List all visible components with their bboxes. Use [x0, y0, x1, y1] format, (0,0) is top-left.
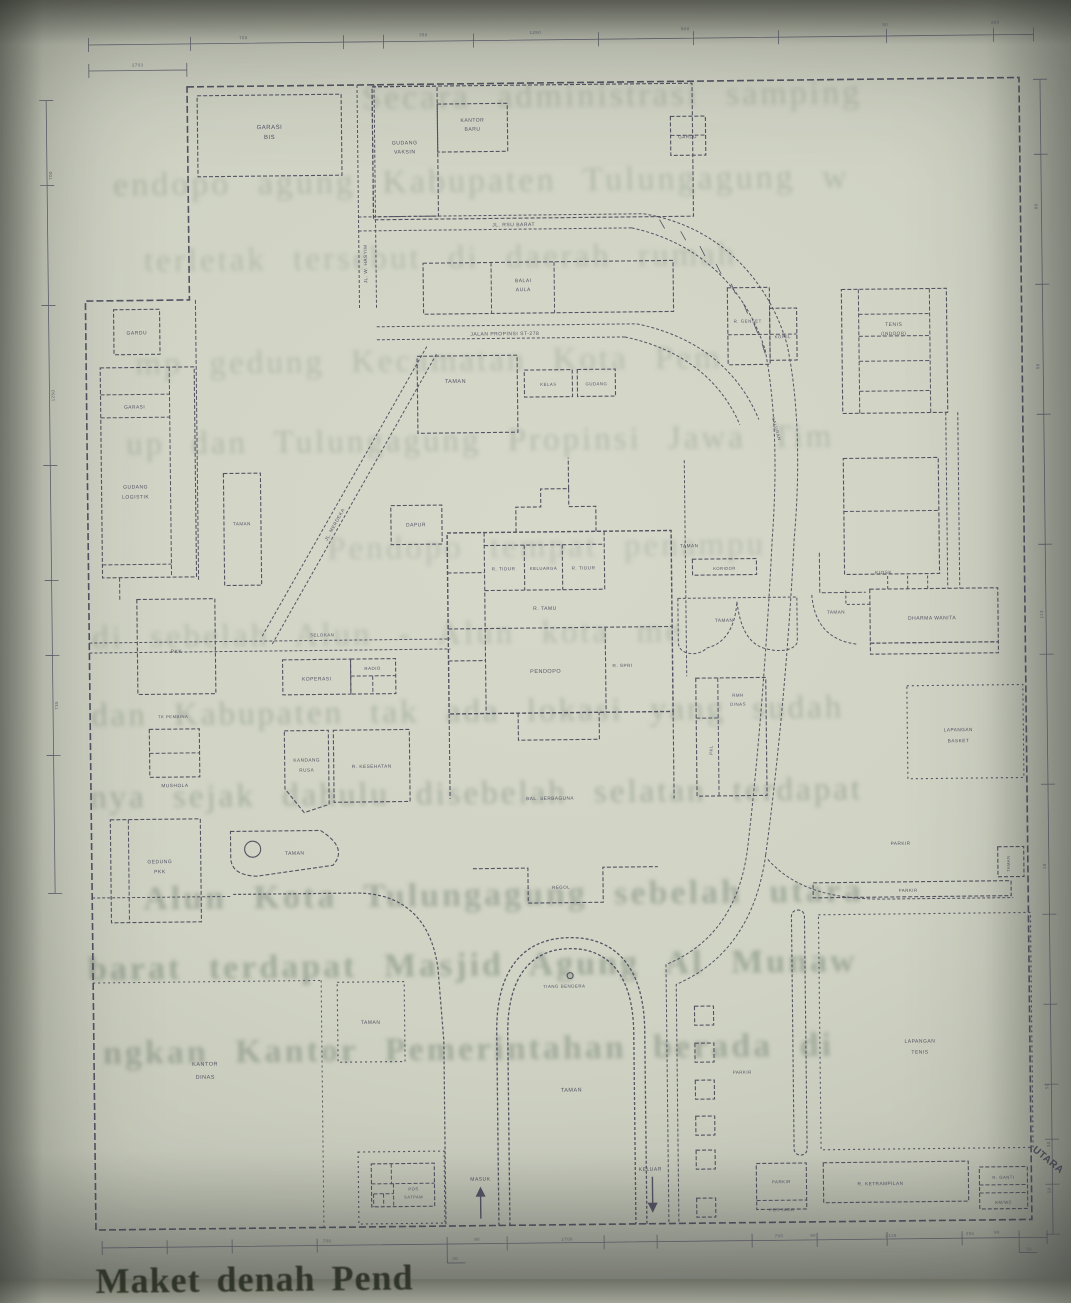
plan-label: GUDANG [392, 140, 418, 146]
site-plan-drawing: GARASIBISGUDANGVAKSINKANTORBARUGARDUJL. … [0, 0, 1071, 1285]
scanned-page: { "document": { "type": "site-plan scan"… [0, 0, 1071, 1279]
building-tenis-indoor [841, 288, 947, 413]
plan-label: R. KETRAMPILAN [857, 1181, 903, 1187]
plan-label: DAPUR [406, 522, 426, 528]
plan-label: JL. W. HASYIM [363, 244, 368, 283]
residence-dividers [696, 678, 719, 796]
plan-label: R. KESEHATAN [352, 764, 392, 769]
building-store [843, 457, 939, 574]
plan-label: KANDANG [293, 757, 320, 762]
plan-label: KELUARGA [530, 566, 557, 571]
garden-strip [223, 473, 261, 585]
plan-label: DHARMA WANITA [908, 615, 956, 622]
plan-label: AULA [516, 287, 531, 293]
plan-label: TAMAN [715, 618, 734, 623]
plan-label: 30 [1046, 1141, 1051, 1147]
road-curve-northeast [631, 212, 787, 351]
plan-label: DINAS [196, 1075, 215, 1081]
plan-label: POS [408, 1186, 418, 1191]
drain-line [89, 639, 450, 653]
garden-arc [812, 594, 859, 645]
plan-label: MASUK [470, 1177, 491, 1183]
plan-label: VAKSIN [394, 149, 416, 155]
plan-label: 700 [239, 35, 248, 40]
plan-label: TENIS [911, 1050, 928, 1056]
plan-label: BALAI [515, 278, 532, 284]
plan-label: 50 [1035, 363, 1040, 369]
page-sheet: Secara administrasi sampingendopo agung … [0, 0, 1071, 1285]
store-divider [844, 510, 939, 511]
planter-box [696, 1116, 715, 1135]
garden-plot [417, 355, 518, 433]
plan-label: 50 [1044, 1083, 1049, 1089]
plan-label: TAMAN [233, 521, 251, 526]
plan-label: BASKET [948, 738, 970, 743]
planter-box [697, 1198, 716, 1217]
plan-label: SELOKAN [310, 632, 334, 637]
plan-label: 50 [1026, 1246, 1032, 1251]
plan-label: JL. RSU BARAT [492, 222, 535, 228]
warehouse-dividers [100, 367, 171, 578]
building-balai-aula [423, 260, 674, 314]
plan-label: UTARA [1030, 1144, 1065, 1176]
plan-label: TAMAN [827, 609, 845, 614]
plan-label: KANTOR [192, 1062, 218, 1068]
top-dimension-line [88, 27, 1033, 52]
plan-label: 2135 [885, 1233, 897, 1238]
plan-label: GARASI [124, 404, 145, 410]
building-pkk [137, 599, 216, 695]
plan-label: TAMAN [445, 379, 466, 385]
plan-label: SATPAM [404, 1194, 423, 1199]
plan-label: GARDU [678, 134, 697, 139]
left-dimension-line [39, 100, 62, 893]
building-pendopo-main [447, 530, 673, 714]
planter-arcs [678, 597, 798, 654]
road-diagonal-west [259, 346, 440, 644]
plan-label: R. SPRI [613, 663, 633, 668]
plan-label: KANTOR [460, 118, 484, 124]
entry-road-wall [233, 892, 446, 1228]
ganti-dividers [980, 1184, 1028, 1193]
garden-arch-inner [507, 948, 636, 1225]
plan-label: RADIO [364, 666, 381, 671]
building-genset [727, 287, 770, 364]
plan-label: R. TIDUR [572, 565, 596, 570]
plan-label: GARDU [126, 330, 147, 336]
building-parkir-pos [756, 1163, 807, 1210]
radio-dividers [351, 676, 396, 695]
plan-label: LOGISTIK [122, 494, 149, 500]
pendopo-room-walls [447, 530, 673, 714]
plan-label: 90 [474, 1237, 480, 1242]
plan-label: PARKIR [899, 888, 918, 893]
plan-label: PARKIR [772, 1179, 791, 1184]
mushola-divider [150, 753, 200, 754]
south-service-road [768, 857, 1013, 901]
north-building-envelope [372, 83, 693, 220]
plan-label: LAPANGAN [944, 727, 973, 732]
pendopo-south-bay [518, 712, 599, 740]
building-dharma-veranda [870, 642, 998, 654]
pond-circle [245, 841, 261, 857]
plan-label: 113 [1039, 610, 1044, 619]
planter-box [694, 1006, 713, 1025]
plan-label: 2700 [561, 1237, 573, 1242]
building-guard-post [371, 1163, 434, 1207]
plan-label: 18 [1042, 863, 1047, 869]
plan-label: 1250 [530, 30, 542, 35]
plan-label: GEDUNG [147, 859, 172, 865]
plan-label: KOPEL [775, 334, 792, 339]
plan-label: 80 [1033, 203, 1038, 209]
plan-label: 900 [681, 26, 690, 31]
plan-label: REGOL [552, 885, 570, 890]
parkir-divider [757, 1200, 807, 1201]
road-center-east [684, 460, 686, 676]
plan-label: GARASI [257, 125, 283, 131]
planter-box [696, 1150, 715, 1169]
plan-label: 280 [991, 20, 1000, 25]
plan-label: LAPANGAN [904, 1038, 935, 1044]
road-exit-curve [665, 847, 770, 1223]
plan-label: 700 [775, 1233, 784, 1238]
plan-label: JALAN PROPINSI ST-278 [470, 331, 539, 338]
plan-label: PENDOPO [530, 669, 561, 675]
west-path [92, 896, 231, 898]
plan-label: GUDANG [585, 381, 607, 386]
plan-label: POS JAGA [769, 1207, 794, 1212]
plan-label: 90 [994, 1230, 1000, 1235]
plan-label: 700 [48, 171, 53, 180]
pendopo-porch-steps [515, 457, 596, 532]
right-dimension-line [1033, 79, 1060, 1234]
plan-label: KORIDOR [713, 566, 736, 571]
plan-label: KELUAR [639, 1167, 662, 1173]
plan-label: R. GANTI [992, 1175, 1014, 1180]
plan-label: RUSA [299, 768, 314, 773]
plan-label: 350 [966, 1231, 975, 1236]
garden-pill-strip [791, 910, 807, 1155]
plan-label: TAMAN [680, 543, 699, 548]
plan-label: RMH [732, 693, 744, 698]
plan-label: SALURAN [771, 417, 782, 442]
plan-label: KM/WC [995, 1200, 1012, 1205]
plan-label: 30 [452, 1256, 458, 1261]
plan-label: R. TIDUR [492, 566, 516, 571]
plan-label: 2703 [132, 62, 144, 67]
plan-label: 50 [1047, 1187, 1052, 1193]
plan-label: 50 [882, 22, 888, 27]
plan-label: R. TAMU [533, 606, 557, 612]
plan-label: TAMAN [561, 1088, 582, 1094]
plan-label: JL. MERDEKA [324, 507, 346, 541]
plan-label: TAMAN [285, 851, 305, 857]
flagpole-symbol [567, 973, 573, 979]
road-mid-curve [625, 322, 759, 426]
guard-post-rooms [371, 1163, 434, 1207]
plan-label: KOPERASI [302, 676, 332, 682]
plan-label: DINAS [730, 702, 746, 707]
plan-label: PKL [708, 745, 713, 755]
plan-label: MUSHOLA [161, 783, 189, 789]
plan-label: TENIS [885, 322, 902, 328]
plan-label: R. GENSET [734, 318, 762, 323]
plan-label: TK PEMBINA [158, 714, 188, 719]
plan-label: PKK [154, 869, 166, 875]
plan-label: TIANG BENDERA [543, 983, 585, 988]
entry-arrow-head [475, 1187, 485, 1197]
exit-arrow-head [648, 1203, 658, 1213]
planter-box [695, 1080, 714, 1099]
plan-label: 350 [419, 32, 428, 37]
plan-label: TAMAN [361, 1020, 381, 1026]
office-grounds-boundary [93, 980, 324, 1230]
plan-label: 1250 [50, 390, 55, 402]
building-stubs [846, 576, 928, 605]
bottom-dimension-line [102, 1230, 1047, 1267]
forecourt-walls [449, 711, 675, 904]
plan-label: 735 [54, 701, 59, 710]
plan-label: (INDOOR) [881, 331, 906, 336]
road-east-vertical [946, 412, 960, 588]
plan-label: PARKIR [891, 841, 911, 846]
indoor-court-structure [858, 289, 930, 414]
plan-label: BAL. SERBAGUNA [526, 796, 574, 802]
plan-label: PKK [171, 649, 183, 655]
plan-label: TAMAN [1006, 856, 1011, 872]
pkk-hall-divider [128, 820, 129, 923]
court-tenis [818, 912, 1033, 1149]
planter-box [695, 1043, 714, 1062]
plan-label: PARKIR [733, 1070, 752, 1075]
plan-label: GUDANG [123, 484, 148, 490]
building-gudang-logistik [100, 367, 196, 578]
kiosk-corner [819, 552, 865, 593]
plan-label: 90 [810, 1233, 816, 1238]
plan-label: BIS [264, 135, 275, 141]
plan-label: KIOSK [875, 570, 892, 575]
plan-label: BARU [465, 127, 481, 133]
plan-label: KELAS [540, 382, 556, 387]
plan-label: 700 [323, 1238, 332, 1243]
